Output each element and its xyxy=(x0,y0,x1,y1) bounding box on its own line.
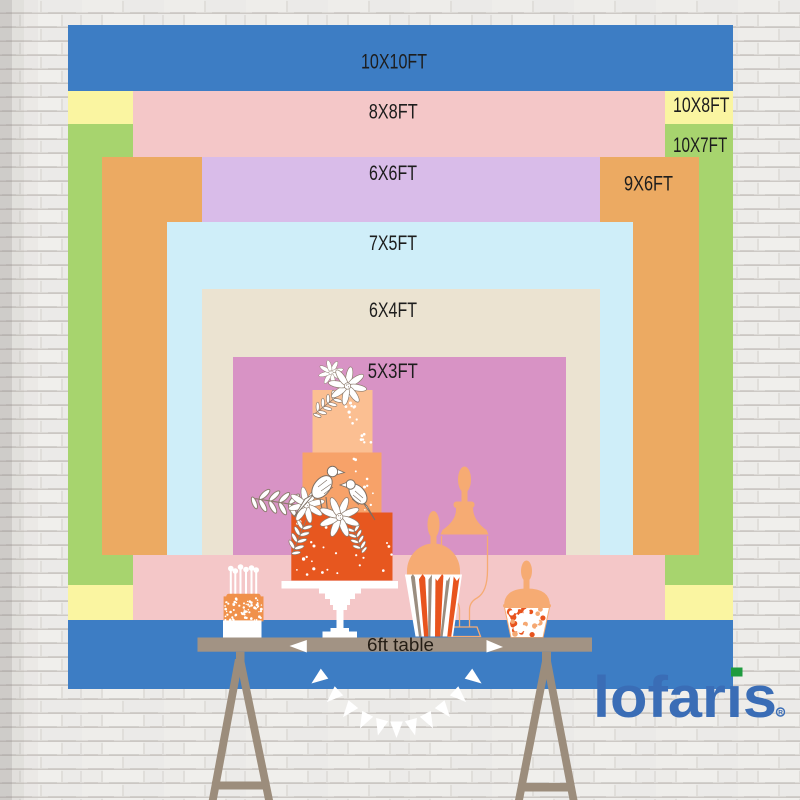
svg-text:lofarıs: lofarıs xyxy=(593,665,777,730)
svg-text:R: R xyxy=(778,710,783,717)
svg-text:6ft table: 6ft table xyxy=(367,634,434,655)
